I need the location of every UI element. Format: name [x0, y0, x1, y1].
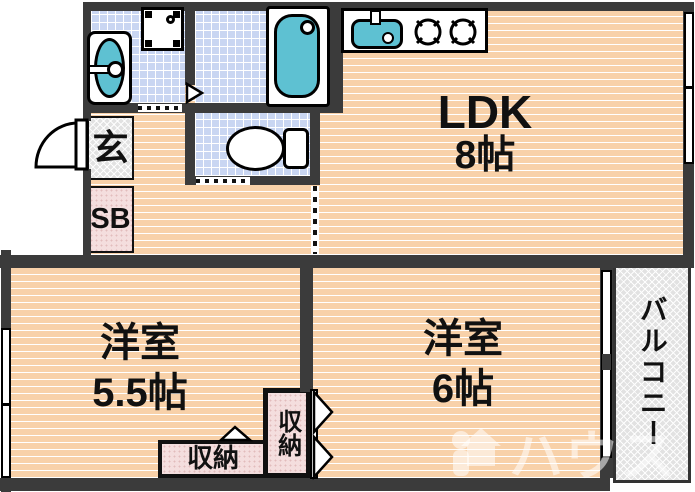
closet-door-icon [314, 392, 332, 432]
bathroom-door-icon [187, 84, 202, 102]
ldk-label: LDK [395, 88, 575, 136]
door-symbols [0, 0, 695, 492]
west6-label: 洋室 [378, 318, 548, 360]
closet-door-icon [221, 427, 250, 440]
ldk-size-label: 8帖 [395, 136, 575, 177]
entrance-door-icon [36, 120, 87, 169]
west55-size-label: 5.5帖 [55, 372, 225, 414]
closet-door-icon [314, 437, 332, 477]
floor-plan: 玄 SB 収納 収納 バルコニー [0, 0, 695, 492]
west55-label: 洋室 [55, 322, 225, 364]
west6-size-label: 6帖 [378, 368, 548, 410]
